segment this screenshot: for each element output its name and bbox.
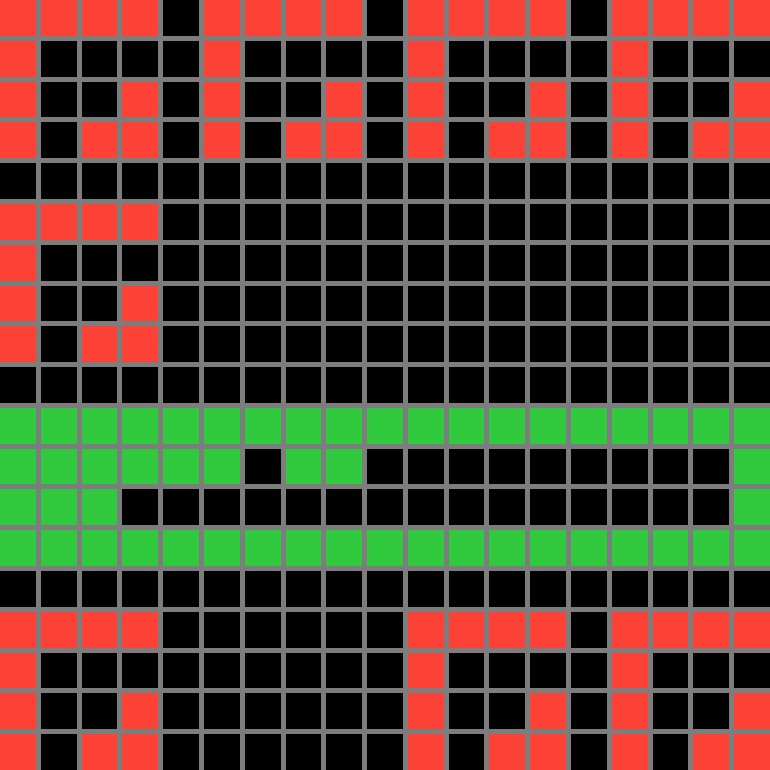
red-cell[interactable]: [82, 612, 118, 648]
empty-cell[interactable]: [449, 245, 485, 281]
red-cell[interactable]: [122, 0, 158, 36]
empty-cell[interactable]: [530, 571, 566, 607]
empty-cell[interactable]: [204, 571, 240, 607]
empty-cell[interactable]: [326, 693, 362, 729]
empty-cell[interactable]: [163, 0, 199, 36]
empty-cell[interactable]: [693, 571, 729, 607]
empty-cell[interactable]: [653, 571, 689, 607]
empty-cell[interactable]: [326, 163, 362, 199]
green-cell[interactable]: [530, 408, 566, 444]
empty-cell[interactable]: [612, 204, 648, 240]
red-cell[interactable]: [530, 693, 566, 729]
red-cell[interactable]: [245, 0, 281, 36]
empty-cell[interactable]: [367, 326, 403, 362]
empty-cell[interactable]: [408, 449, 444, 485]
empty-cell[interactable]: [245, 286, 281, 322]
green-cell[interactable]: [734, 449, 770, 485]
empty-cell[interactable]: [245, 367, 281, 403]
red-cell[interactable]: [122, 734, 158, 770]
empty-cell[interactable]: [326, 489, 362, 525]
red-cell[interactable]: [653, 0, 689, 36]
empty-cell[interactable]: [653, 489, 689, 525]
empty-cell[interactable]: [326, 612, 362, 648]
empty-cell[interactable]: [204, 734, 240, 770]
empty-cell[interactable]: [653, 204, 689, 240]
empty-cell[interactable]: [286, 653, 322, 689]
empty-cell[interactable]: [530, 286, 566, 322]
empty-cell[interactable]: [286, 82, 322, 118]
green-cell[interactable]: [408, 530, 444, 566]
empty-cell[interactable]: [286, 693, 322, 729]
empty-cell[interactable]: [693, 82, 729, 118]
empty-cell[interactable]: [612, 571, 648, 607]
empty-cell[interactable]: [449, 286, 485, 322]
empty-cell[interactable]: [489, 367, 525, 403]
empty-cell[interactable]: [286, 41, 322, 77]
empty-cell[interactable]: [653, 122, 689, 158]
empty-cell[interactable]: [367, 204, 403, 240]
empty-cell[interactable]: [571, 449, 607, 485]
empty-cell[interactable]: [286, 326, 322, 362]
red-cell[interactable]: [41, 0, 77, 36]
green-cell[interactable]: [82, 530, 118, 566]
empty-cell[interactable]: [449, 449, 485, 485]
empty-cell[interactable]: [367, 245, 403, 281]
red-cell[interactable]: [734, 734, 770, 770]
empty-cell[interactable]: [41, 82, 77, 118]
green-cell[interactable]: [41, 530, 77, 566]
green-cell[interactable]: [326, 408, 362, 444]
empty-cell[interactable]: [41, 653, 77, 689]
red-cell[interactable]: [693, 734, 729, 770]
empty-cell[interactable]: [245, 204, 281, 240]
empty-cell[interactable]: [449, 734, 485, 770]
green-cell[interactable]: [734, 530, 770, 566]
red-cell[interactable]: [530, 82, 566, 118]
red-cell[interactable]: [612, 82, 648, 118]
empty-cell[interactable]: [163, 286, 199, 322]
red-cell[interactable]: [408, 612, 444, 648]
green-cell[interactable]: [571, 530, 607, 566]
empty-cell[interactable]: [489, 693, 525, 729]
green-cell[interactable]: [163, 449, 199, 485]
red-cell[interactable]: [612, 122, 648, 158]
empty-cell[interactable]: [204, 367, 240, 403]
empty-cell[interactable]: [326, 326, 362, 362]
green-cell[interactable]: [245, 530, 281, 566]
green-cell[interactable]: [122, 449, 158, 485]
empty-cell[interactable]: [326, 571, 362, 607]
empty-cell[interactable]: [286, 163, 322, 199]
empty-cell[interactable]: [204, 326, 240, 362]
empty-cell[interactable]: [530, 204, 566, 240]
empty-cell[interactable]: [326, 245, 362, 281]
green-cell[interactable]: [489, 408, 525, 444]
empty-cell[interactable]: [449, 693, 485, 729]
green-cell[interactable]: [612, 530, 648, 566]
empty-cell[interactable]: [489, 163, 525, 199]
empty-cell[interactable]: [82, 367, 118, 403]
red-cell[interactable]: [326, 0, 362, 36]
empty-cell[interactable]: [326, 367, 362, 403]
empty-cell[interactable]: [489, 449, 525, 485]
empty-cell[interactable]: [367, 367, 403, 403]
empty-cell[interactable]: [693, 693, 729, 729]
empty-cell[interactable]: [571, 122, 607, 158]
empty-cell[interactable]: [286, 571, 322, 607]
empty-cell[interactable]: [449, 571, 485, 607]
empty-cell[interactable]: [163, 734, 199, 770]
empty-cell[interactable]: [489, 286, 525, 322]
red-cell[interactable]: [612, 653, 648, 689]
empty-cell[interactable]: [204, 204, 240, 240]
green-cell[interactable]: [163, 530, 199, 566]
empty-cell[interactable]: [489, 41, 525, 77]
empty-cell[interactable]: [408, 204, 444, 240]
empty-cell[interactable]: [693, 653, 729, 689]
red-cell[interactable]: [612, 41, 648, 77]
empty-cell[interactable]: [41, 122, 77, 158]
empty-cell[interactable]: [449, 204, 485, 240]
empty-cell[interactable]: [571, 163, 607, 199]
red-cell[interactable]: [489, 734, 525, 770]
green-cell[interactable]: [326, 449, 362, 485]
empty-cell[interactable]: [571, 653, 607, 689]
empty-cell[interactable]: [326, 734, 362, 770]
empty-cell[interactable]: [367, 653, 403, 689]
empty-cell[interactable]: [367, 286, 403, 322]
green-cell[interactable]: [245, 408, 281, 444]
empty-cell[interactable]: [571, 0, 607, 36]
empty-cell[interactable]: [367, 571, 403, 607]
empty-cell[interactable]: [163, 122, 199, 158]
empty-cell[interactable]: [41, 286, 77, 322]
green-cell[interactable]: [653, 408, 689, 444]
empty-cell[interactable]: [653, 653, 689, 689]
green-cell[interactable]: [286, 530, 322, 566]
empty-cell[interactable]: [489, 326, 525, 362]
empty-cell[interactable]: [530, 326, 566, 362]
empty-cell[interactable]: [408, 326, 444, 362]
empty-cell[interactable]: [286, 204, 322, 240]
red-cell[interactable]: [408, 0, 444, 36]
empty-cell[interactable]: [653, 41, 689, 77]
empty-cell[interactable]: [122, 571, 158, 607]
red-cell[interactable]: [0, 245, 36, 281]
red-cell[interactable]: [489, 0, 525, 36]
empty-cell[interactable]: [245, 82, 281, 118]
green-cell[interactable]: [449, 530, 485, 566]
empty-cell[interactable]: [734, 163, 770, 199]
red-cell[interactable]: [734, 0, 770, 36]
red-cell[interactable]: [82, 326, 118, 362]
empty-cell[interactable]: [449, 41, 485, 77]
empty-cell[interactable]: [449, 653, 485, 689]
red-cell[interactable]: [449, 612, 485, 648]
empty-cell[interactable]: [245, 734, 281, 770]
empty-cell[interactable]: [571, 693, 607, 729]
empty-cell[interactable]: [326, 204, 362, 240]
red-cell[interactable]: [0, 286, 36, 322]
empty-cell[interactable]: [41, 571, 77, 607]
green-cell[interactable]: [286, 408, 322, 444]
red-cell[interactable]: [653, 612, 689, 648]
empty-cell[interactable]: [530, 489, 566, 525]
red-cell[interactable]: [612, 734, 648, 770]
empty-cell[interactable]: [408, 163, 444, 199]
empty-cell[interactable]: [163, 489, 199, 525]
empty-cell[interactable]: [612, 286, 648, 322]
empty-cell[interactable]: [693, 367, 729, 403]
empty-cell[interactable]: [245, 489, 281, 525]
empty-cell[interactable]: [245, 693, 281, 729]
empty-cell[interactable]: [122, 245, 158, 281]
empty-cell[interactable]: [530, 367, 566, 403]
red-cell[interactable]: [122, 204, 158, 240]
green-cell[interactable]: [41, 489, 77, 525]
empty-cell[interactable]: [693, 204, 729, 240]
empty-cell[interactable]: [489, 489, 525, 525]
empty-cell[interactable]: [612, 326, 648, 362]
empty-cell[interactable]: [612, 245, 648, 281]
empty-cell[interactable]: [41, 163, 77, 199]
red-cell[interactable]: [122, 693, 158, 729]
empty-cell[interactable]: [489, 571, 525, 607]
empty-cell[interactable]: [449, 82, 485, 118]
red-cell[interactable]: [0, 734, 36, 770]
green-cell[interactable]: [408, 408, 444, 444]
red-cell[interactable]: [408, 734, 444, 770]
empty-cell[interactable]: [693, 326, 729, 362]
empty-cell[interactable]: [122, 489, 158, 525]
empty-cell[interactable]: [408, 367, 444, 403]
empty-cell[interactable]: [163, 612, 199, 648]
red-cell[interactable]: [326, 122, 362, 158]
green-cell[interactable]: [653, 530, 689, 566]
empty-cell[interactable]: [571, 367, 607, 403]
empty-cell[interactable]: [734, 653, 770, 689]
empty-cell[interactable]: [82, 693, 118, 729]
green-cell[interactable]: [41, 449, 77, 485]
empty-cell[interactable]: [204, 163, 240, 199]
empty-cell[interactable]: [530, 449, 566, 485]
red-cell[interactable]: [530, 0, 566, 36]
empty-cell[interactable]: [653, 82, 689, 118]
green-cell[interactable]: [0, 408, 36, 444]
green-cell[interactable]: [204, 408, 240, 444]
empty-cell[interactable]: [163, 367, 199, 403]
empty-cell[interactable]: [653, 449, 689, 485]
empty-cell[interactable]: [449, 163, 485, 199]
red-cell[interactable]: [204, 122, 240, 158]
empty-cell[interactable]: [734, 41, 770, 77]
empty-cell[interactable]: [82, 245, 118, 281]
empty-cell[interactable]: [286, 734, 322, 770]
empty-cell[interactable]: [286, 489, 322, 525]
red-cell[interactable]: [408, 122, 444, 158]
green-cell[interactable]: [571, 408, 607, 444]
empty-cell[interactable]: [41, 41, 77, 77]
empty-cell[interactable]: [734, 367, 770, 403]
green-cell[interactable]: [0, 530, 36, 566]
empty-cell[interactable]: [163, 204, 199, 240]
empty-cell[interactable]: [367, 449, 403, 485]
empty-cell[interactable]: [530, 41, 566, 77]
red-cell[interactable]: [734, 82, 770, 118]
empty-cell[interactable]: [612, 367, 648, 403]
empty-cell[interactable]: [612, 163, 648, 199]
empty-cell[interactable]: [41, 367, 77, 403]
empty-cell[interactable]: [693, 245, 729, 281]
empty-cell[interactable]: [530, 163, 566, 199]
green-cell[interactable]: [734, 408, 770, 444]
empty-cell[interactable]: [449, 122, 485, 158]
empty-cell[interactable]: [571, 286, 607, 322]
empty-cell[interactable]: [204, 245, 240, 281]
empty-cell[interactable]: [408, 571, 444, 607]
red-cell[interactable]: [734, 122, 770, 158]
empty-cell[interactable]: [82, 286, 118, 322]
red-cell[interactable]: [204, 82, 240, 118]
empty-cell[interactable]: [489, 204, 525, 240]
empty-cell[interactable]: [653, 245, 689, 281]
empty-cell[interactable]: [653, 367, 689, 403]
empty-cell[interactable]: [41, 693, 77, 729]
empty-cell[interactable]: [245, 612, 281, 648]
red-cell[interactable]: [0, 326, 36, 362]
empty-cell[interactable]: [734, 326, 770, 362]
green-cell[interactable]: [122, 408, 158, 444]
empty-cell[interactable]: [82, 653, 118, 689]
empty-cell[interactable]: [326, 41, 362, 77]
empty-cell[interactable]: [408, 489, 444, 525]
empty-cell[interactable]: [41, 734, 77, 770]
red-cell[interactable]: [204, 0, 240, 36]
red-cell[interactable]: [0, 612, 36, 648]
empty-cell[interactable]: [245, 41, 281, 77]
empty-cell[interactable]: [0, 163, 36, 199]
green-cell[interactable]: [449, 408, 485, 444]
green-cell[interactable]: [0, 449, 36, 485]
red-cell[interactable]: [0, 122, 36, 158]
empty-cell[interactable]: [367, 489, 403, 525]
empty-cell[interactable]: [653, 163, 689, 199]
red-cell[interactable]: [693, 612, 729, 648]
green-cell[interactable]: [286, 449, 322, 485]
empty-cell[interactable]: [367, 0, 403, 36]
empty-cell[interactable]: [245, 163, 281, 199]
empty-cell[interactable]: [449, 326, 485, 362]
red-cell[interactable]: [408, 82, 444, 118]
red-cell[interactable]: [489, 612, 525, 648]
green-cell[interactable]: [82, 489, 118, 525]
red-cell[interactable]: [82, 734, 118, 770]
empty-cell[interactable]: [408, 286, 444, 322]
green-cell[interactable]: [122, 530, 158, 566]
red-cell[interactable]: [530, 612, 566, 648]
empty-cell[interactable]: [245, 449, 281, 485]
green-cell[interactable]: [612, 408, 648, 444]
empty-cell[interactable]: [693, 489, 729, 525]
empty-cell[interactable]: [734, 286, 770, 322]
empty-cell[interactable]: [82, 571, 118, 607]
empty-cell[interactable]: [245, 653, 281, 689]
empty-cell[interactable]: [571, 489, 607, 525]
empty-cell[interactable]: [734, 245, 770, 281]
empty-cell[interactable]: [571, 41, 607, 77]
red-cell[interactable]: [122, 122, 158, 158]
green-cell[interactable]: [367, 530, 403, 566]
empty-cell[interactable]: [41, 245, 77, 281]
red-cell[interactable]: [612, 0, 648, 36]
green-cell[interactable]: [0, 489, 36, 525]
empty-cell[interactable]: [408, 245, 444, 281]
red-cell[interactable]: [41, 612, 77, 648]
empty-cell[interactable]: [163, 693, 199, 729]
empty-cell[interactable]: [204, 693, 240, 729]
empty-cell[interactable]: [0, 571, 36, 607]
empty-cell[interactable]: [367, 693, 403, 729]
empty-cell[interactable]: [612, 489, 648, 525]
red-cell[interactable]: [489, 122, 525, 158]
empty-cell[interactable]: [163, 245, 199, 281]
green-cell[interactable]: [693, 408, 729, 444]
empty-cell[interactable]: [204, 653, 240, 689]
red-cell[interactable]: [122, 82, 158, 118]
red-cell[interactable]: [530, 734, 566, 770]
empty-cell[interactable]: [571, 612, 607, 648]
empty-cell[interactable]: [653, 326, 689, 362]
green-cell[interactable]: [367, 408, 403, 444]
red-cell[interactable]: [612, 612, 648, 648]
empty-cell[interactable]: [367, 163, 403, 199]
empty-cell[interactable]: [286, 245, 322, 281]
red-cell[interactable]: [530, 122, 566, 158]
red-cell[interactable]: [693, 0, 729, 36]
empty-cell[interactable]: [367, 734, 403, 770]
green-cell[interactable]: [82, 449, 118, 485]
empty-cell[interactable]: [367, 41, 403, 77]
red-cell[interactable]: [0, 82, 36, 118]
empty-cell[interactable]: [326, 286, 362, 322]
empty-cell[interactable]: [163, 41, 199, 77]
empty-cell[interactable]: [734, 204, 770, 240]
empty-cell[interactable]: [449, 367, 485, 403]
empty-cell[interactable]: [245, 571, 281, 607]
empty-cell[interactable]: [286, 367, 322, 403]
empty-cell[interactable]: [449, 489, 485, 525]
red-cell[interactable]: [41, 204, 77, 240]
green-cell[interactable]: [734, 489, 770, 525]
empty-cell[interactable]: [693, 449, 729, 485]
empty-cell[interactable]: [82, 163, 118, 199]
red-cell[interactable]: [326, 82, 362, 118]
green-cell[interactable]: [163, 408, 199, 444]
green-cell[interactable]: [530, 530, 566, 566]
empty-cell[interactable]: [82, 82, 118, 118]
red-cell[interactable]: [286, 122, 322, 158]
empty-cell[interactable]: [367, 122, 403, 158]
red-cell[interactable]: [122, 612, 158, 648]
red-cell[interactable]: [82, 204, 118, 240]
red-cell[interactable]: [204, 41, 240, 77]
empty-cell[interactable]: [204, 489, 240, 525]
red-cell[interactable]: [122, 326, 158, 362]
red-cell[interactable]: [693, 122, 729, 158]
empty-cell[interactable]: [734, 571, 770, 607]
red-cell[interactable]: [0, 41, 36, 77]
empty-cell[interactable]: [245, 245, 281, 281]
